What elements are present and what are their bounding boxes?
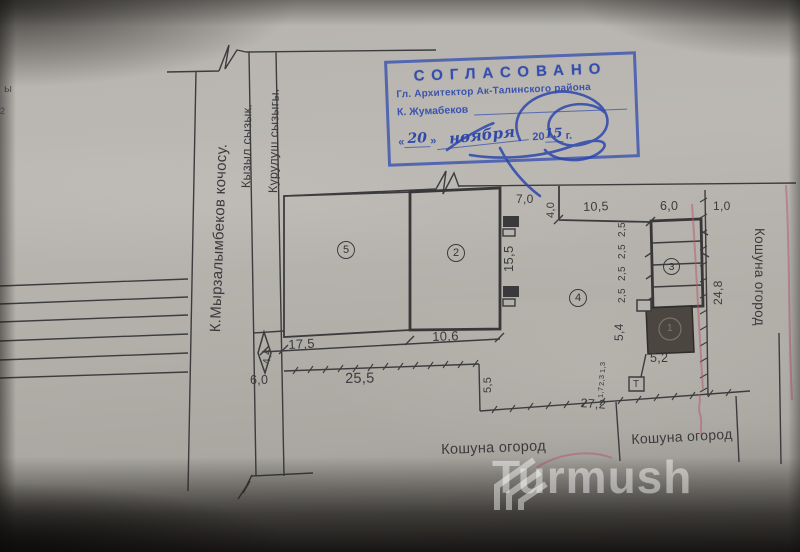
area-number-house: 2 bbox=[447, 244, 465, 262]
porch-step-filled bbox=[503, 216, 519, 227]
stamp-name-line: К. Жумабеков bbox=[397, 98, 627, 119]
stamp-name: К. Жумабеков bbox=[397, 104, 469, 119]
stamp-date-suffix: г. bbox=[565, 130, 572, 142]
porch-step-outline bbox=[503, 229, 515, 236]
area-number-text: 4 bbox=[575, 292, 581, 304]
dim-1-7: 1,7 bbox=[597, 387, 605, 398]
dim-17-5: 17,5 bbox=[288, 337, 315, 351]
dim-2-3: 2,3 bbox=[598, 375, 606, 386]
building-line-label: Курулуш сызыгы. bbox=[267, 88, 281, 193]
dim-5-2: 5,2 bbox=[650, 352, 668, 365]
stamp-signature-line bbox=[474, 98, 627, 116]
dim-4-4: 4,4 bbox=[262, 349, 273, 365]
area-number-hatched: 1 bbox=[667, 324, 673, 334]
dim-1-0: 1,0 bbox=[713, 200, 731, 212]
dim-25-5: 25,5 bbox=[345, 371, 375, 386]
dim-6-0-top: 6,0 bbox=[660, 200, 678, 213]
edge-text-fragment: 2 bbox=[0, 107, 5, 116]
edge-text-fragment: ы bbox=[4, 84, 12, 95]
dim-2-5: 2,5 bbox=[618, 288, 628, 303]
dim-1-3: 1,3 bbox=[599, 362, 607, 373]
area-number-text: 2 bbox=[453, 247, 459, 259]
t-box-label: Т bbox=[633, 380, 639, 390]
stamp-date-line: « 20 » ноября 20 15 г. bbox=[398, 121, 629, 149]
stamp-year-hand: 15 bbox=[544, 126, 563, 143]
dim-2-5: 2,5 bbox=[618, 266, 628, 281]
dim-5-4: 5,4 bbox=[613, 323, 625, 341]
dim-7-0: 7,0 bbox=[516, 193, 534, 205]
stamp-date-month: ноября bbox=[435, 121, 529, 150]
scanned-site-plan-photo: ы 2 К.Мырзалымбеков кочосу. Кызыл сызык.… bbox=[0, 0, 800, 552]
porch-step-outline bbox=[503, 299, 515, 306]
dim-6-0-front: 6,0 bbox=[250, 374, 268, 387]
red-line-label: Кызыл сызык. bbox=[240, 104, 254, 188]
area-number-text: 3 bbox=[669, 261, 675, 273]
area-number-front-yard: 5 bbox=[337, 241, 355, 259]
dim-4-0: 4,0 bbox=[546, 202, 557, 218]
stamp-date-day: 20 bbox=[404, 130, 431, 148]
stamp-year-printed: 20 bbox=[532, 131, 545, 143]
area-number-text: 5 bbox=[343, 244, 349, 256]
garden-label-bottom-left: Кошуна огород bbox=[441, 439, 546, 457]
dim-2-5: 2,5 bbox=[618, 222, 628, 237]
dim-10-5: 10,5 bbox=[583, 200, 609, 213]
dim-5-5: 5,5 bbox=[483, 377, 494, 393]
dim-10-6: 10,6 bbox=[432, 329, 459, 343]
porch-step-filled bbox=[503, 286, 519, 297]
notch-box bbox=[637, 300, 651, 311]
area-number-shed: 3 bbox=[663, 258, 680, 275]
dim-27-2: 27,2 bbox=[580, 397, 606, 411]
area-number-back-yard: 4 bbox=[569, 289, 587, 307]
dim-24-8: 24,8 bbox=[712, 280, 724, 305]
dim-2-5: 2,5 bbox=[618, 244, 628, 259]
dim-15-5: 15,5 bbox=[502, 245, 515, 272]
garden-label-right-side: Кошуна огород bbox=[753, 228, 767, 326]
approval-stamp: СОГЛАСОВАНО Гл. Архитектор Ак-Талинского… bbox=[384, 51, 640, 167]
